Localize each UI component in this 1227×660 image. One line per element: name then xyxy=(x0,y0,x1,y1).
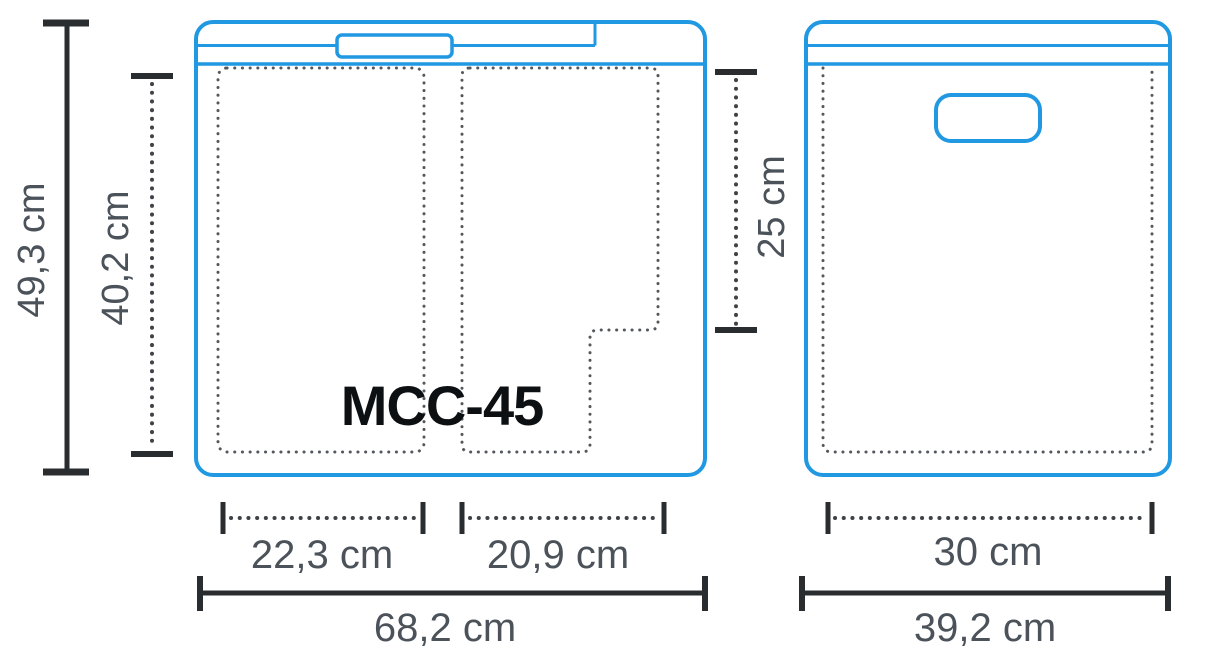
front-dim-inner-width-left xyxy=(223,502,423,534)
front-outer-height-label: 49,3 cm xyxy=(13,182,51,317)
side-outer-width-label: 39,2 cm xyxy=(914,608,1056,648)
cooler-dimension-diagram: 49,3 cm 40,2 cm MCC-45 22,3 cm 20,9 cm 6… xyxy=(0,0,1227,660)
front-inner-height-label: 40,2 cm xyxy=(97,190,135,325)
side-view xyxy=(715,22,1170,611)
model-name-label: MCC-45 xyxy=(341,378,543,434)
side-interior-outline xyxy=(823,68,1152,452)
side-inner-width-label: 30 cm xyxy=(934,532,1043,572)
front-dim-inner-width-right xyxy=(462,502,664,534)
front-dim-inner-height xyxy=(131,76,173,454)
front-inner-width-left-label: 22,3 cm xyxy=(251,535,393,575)
front-lid-latch xyxy=(337,35,452,57)
front-outer-width-label: 68,2 cm xyxy=(374,608,516,648)
side-outer-outline xyxy=(806,22,1170,475)
side-inner-height-label: 25 cm xyxy=(753,155,791,258)
front-inner-width-right-label: 20,9 cm xyxy=(487,535,629,575)
front-view xyxy=(43,22,705,611)
side-handle-cutout xyxy=(936,95,1040,141)
